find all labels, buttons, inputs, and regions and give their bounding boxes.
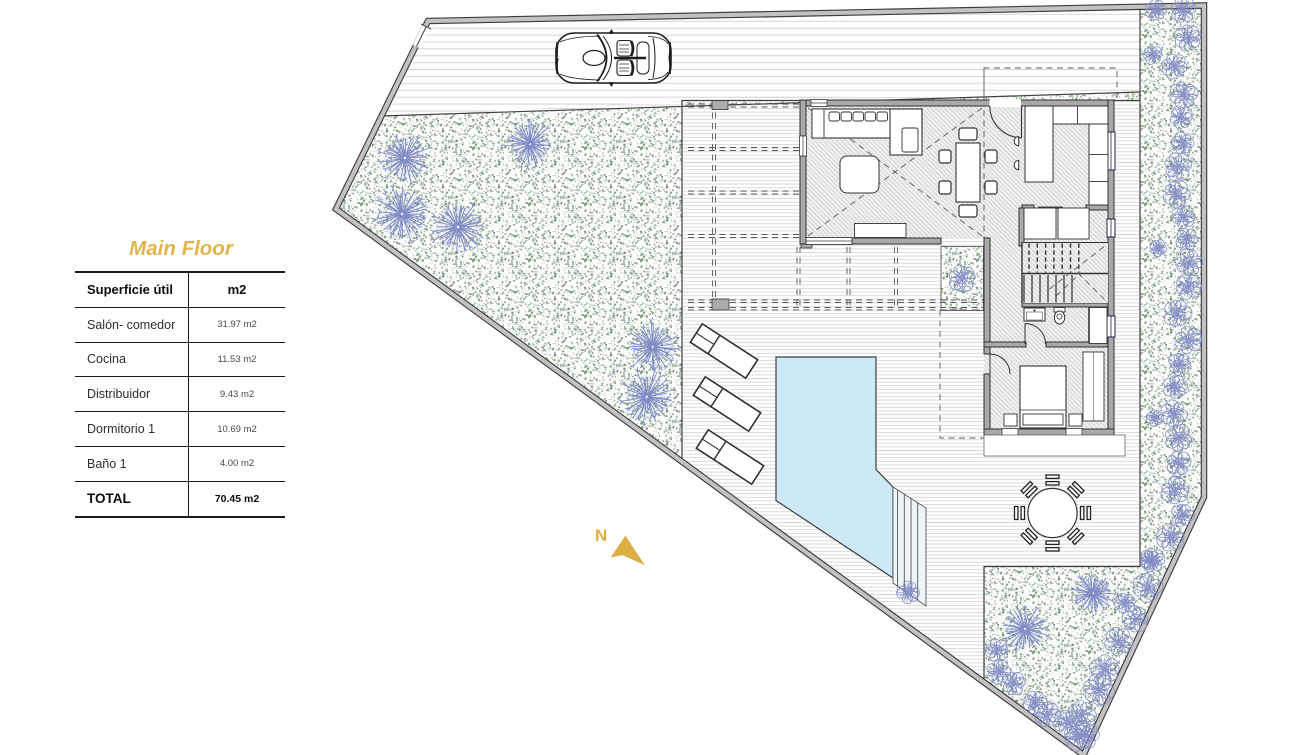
svg-text:N: N (595, 526, 607, 545)
